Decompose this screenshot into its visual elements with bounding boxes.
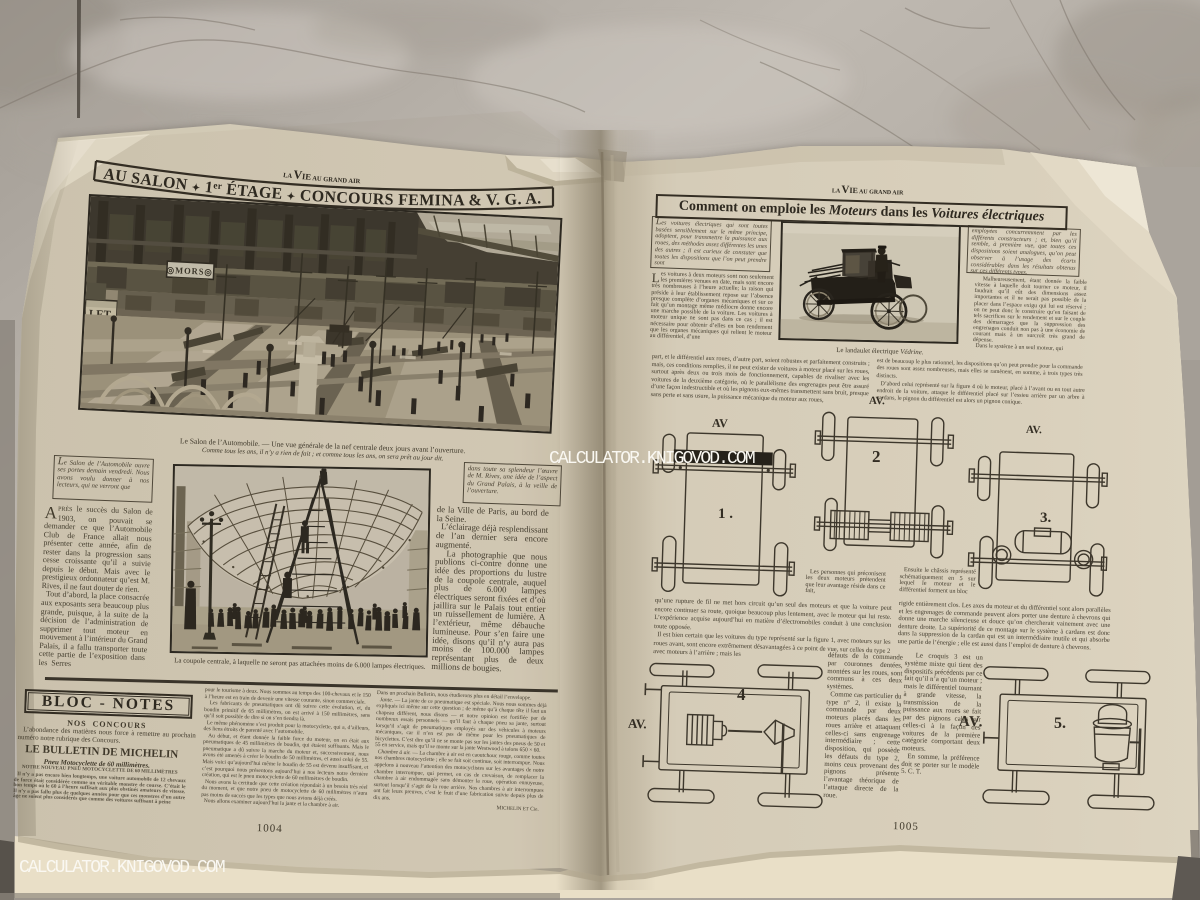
svg-text:4: 4 (737, 685, 746, 704)
svg-text:2: 2 (872, 447, 881, 466)
svg-text:3.: 3. (1040, 510, 1052, 526)
svg-text:1 .: 1 . (718, 506, 733, 522)
svg-text:LA VIE AU GRAND AIR: LA VIE AU GRAND AIR (283, 167, 361, 185)
svg-text:5.: 5. (1054, 715, 1066, 732)
